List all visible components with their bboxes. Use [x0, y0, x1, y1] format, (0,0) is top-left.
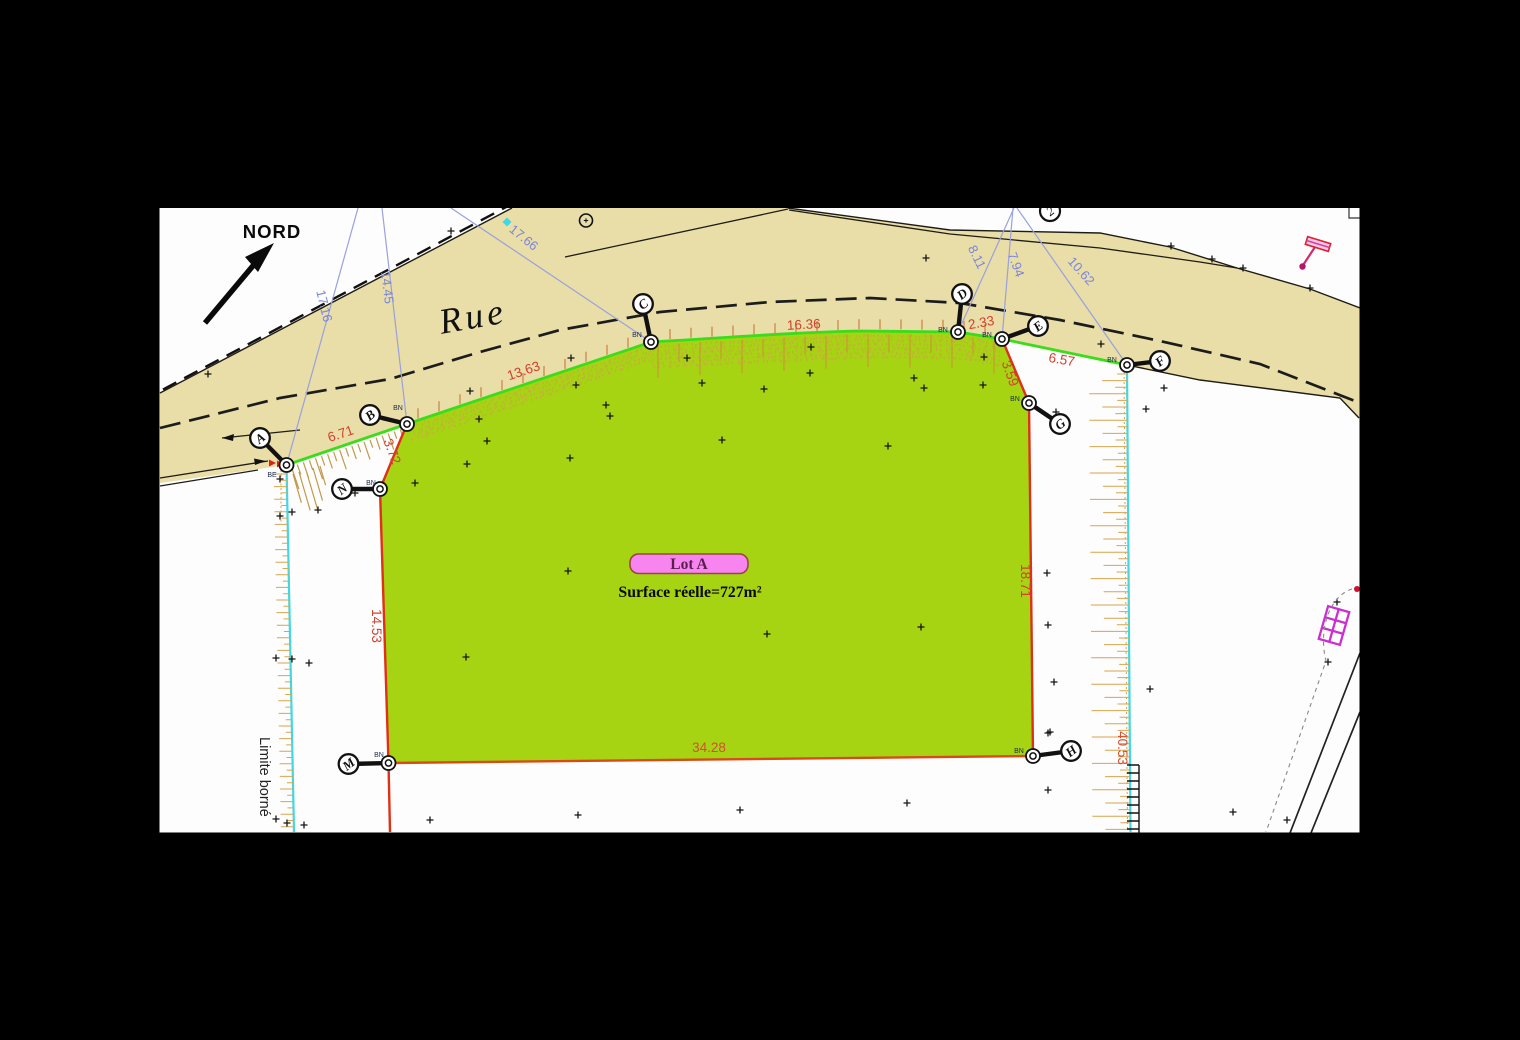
svg-text:BE: BE	[267, 472, 277, 479]
svg-text:BN: BN	[374, 752, 384, 759]
svg-text:BN: BN	[1014, 748, 1024, 755]
svg-text:34.28: 34.28	[692, 740, 726, 755]
svg-text:Limite borné: Limite borné	[256, 737, 272, 817]
svg-text:BN: BN	[366, 480, 376, 487]
svg-text:40.53: 40.53	[1115, 731, 1130, 765]
svg-text:18.71: 18.71	[1018, 564, 1033, 598]
svg-text:BN: BN	[1010, 396, 1020, 403]
svg-text:14.53: 14.53	[369, 609, 384, 643]
svg-text:BN: BN	[982, 332, 992, 339]
svg-text:BN: BN	[938, 327, 948, 334]
svg-text:Lot A: Lot A	[670, 556, 708, 573]
svg-text:Surface réelle=727m²: Surface réelle=727m²	[618, 584, 761, 601]
svg-text:BN: BN	[1107, 357, 1117, 364]
svg-text:BN: BN	[393, 405, 403, 412]
svg-text:NORD: NORD	[243, 221, 301, 242]
svg-text:BN: BN	[632, 332, 642, 339]
svg-text:16.36: 16.36	[786, 316, 821, 333]
